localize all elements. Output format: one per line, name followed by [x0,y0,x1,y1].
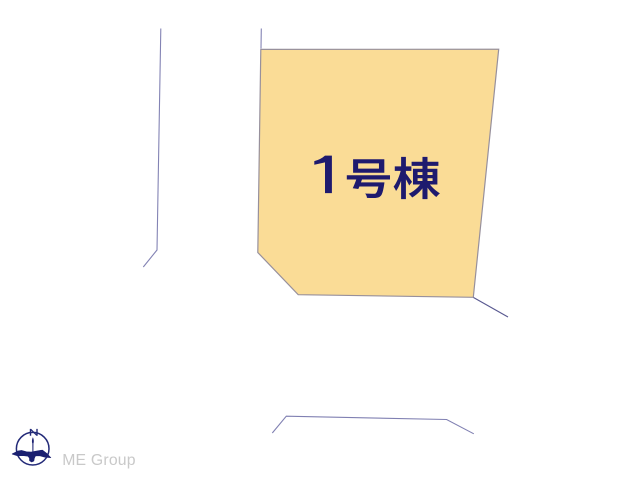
svg-text:ME Group: ME Group [62,452,136,469]
